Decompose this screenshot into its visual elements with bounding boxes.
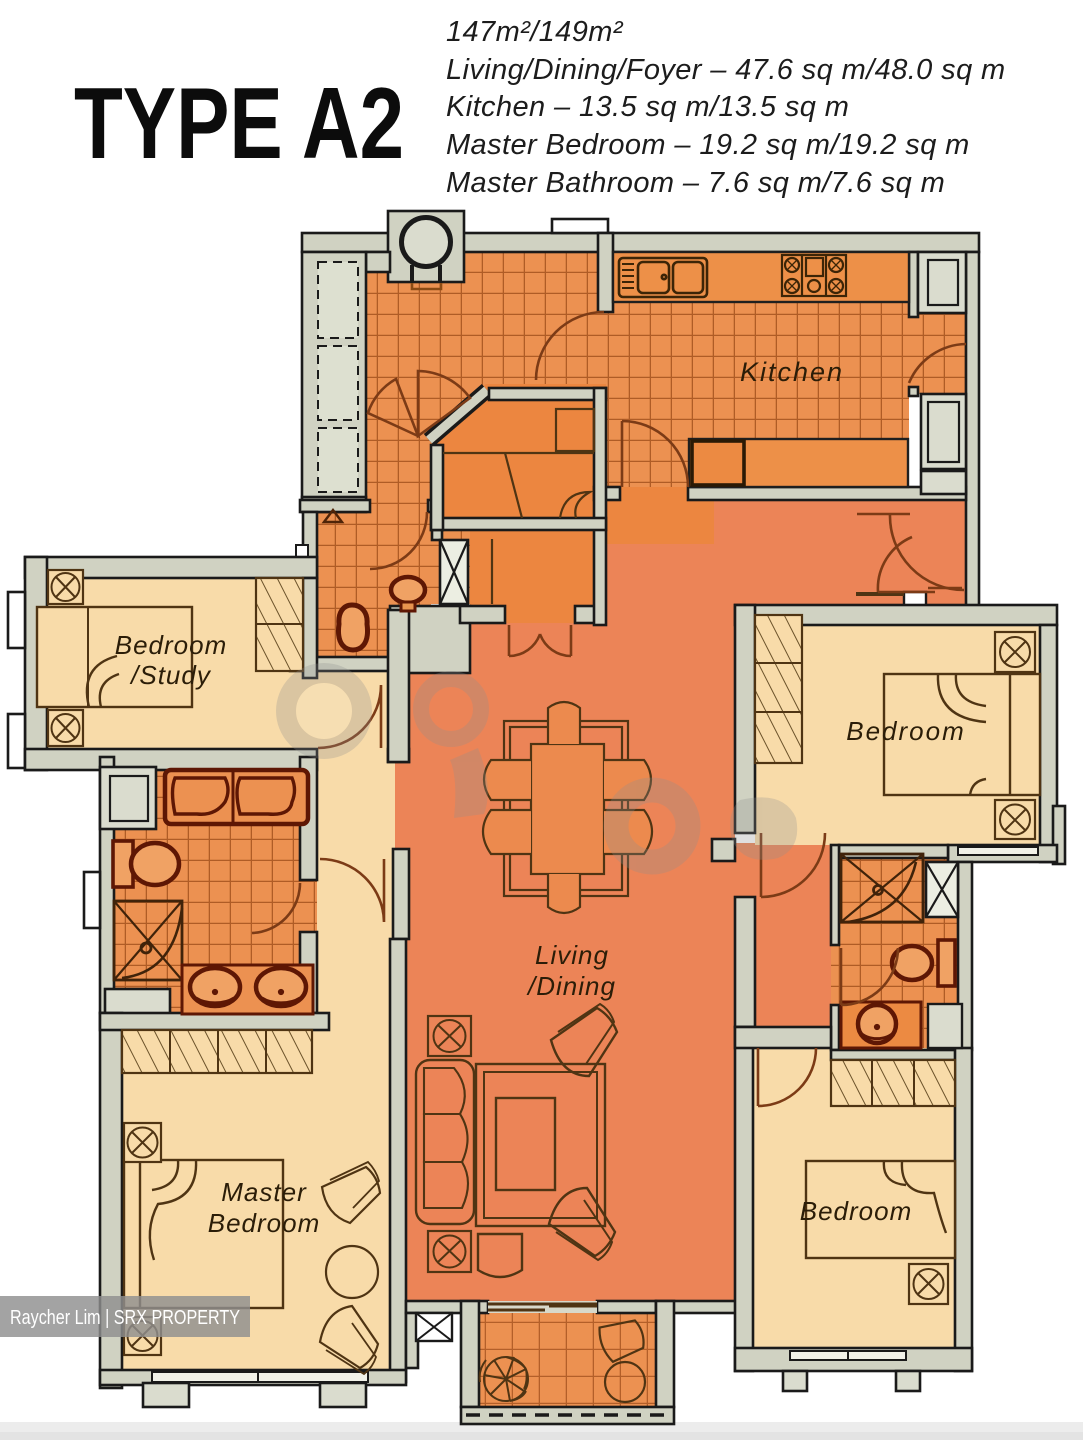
svg-text:147m²/149m²: 147m²/149m² [446, 16, 624, 48]
svg-text:Master Bedroom – 19.2 sq m/19.: Master Bedroom – 19.2 sq m/19.2 sq m [446, 129, 970, 161]
svg-text:Bedroom: Bedroom [846, 716, 966, 746]
svg-text:Master: Master [221, 1177, 307, 1207]
svg-text:Bedroom: Bedroom [800, 1196, 913, 1226]
svg-text:Living: Living [535, 940, 609, 970]
svg-text:Bedroom: Bedroom [115, 630, 228, 660]
svg-text:Bedroom: Bedroom [208, 1208, 321, 1238]
svg-text:/Dining: /Dining [526, 971, 616, 1001]
svg-text:/Study: /Study [129, 660, 212, 690]
svg-text:Living/Dining/Foyer – 47.6 sq: Living/Dining/Foyer – 47.6 sq m/48.0 sq … [446, 54, 1006, 86]
svg-text:TYPE A2: TYPE A2 [74, 68, 404, 180]
svg-text:Master Bathroom – 7.6 sq m/7.6: Master Bathroom – 7.6 sq m/7.6 sq m [446, 167, 945, 199]
svg-text:Raycher Lim | SRX PROPERTY: Raycher Lim | SRX PROPERTY [10, 1307, 240, 1329]
svg-text:Kitchen: Kitchen [740, 357, 844, 387]
svg-text:Kitchen – 13.5 sq m/13.5 sq m: Kitchen – 13.5 sq m/13.5 sq m [446, 91, 849, 123]
